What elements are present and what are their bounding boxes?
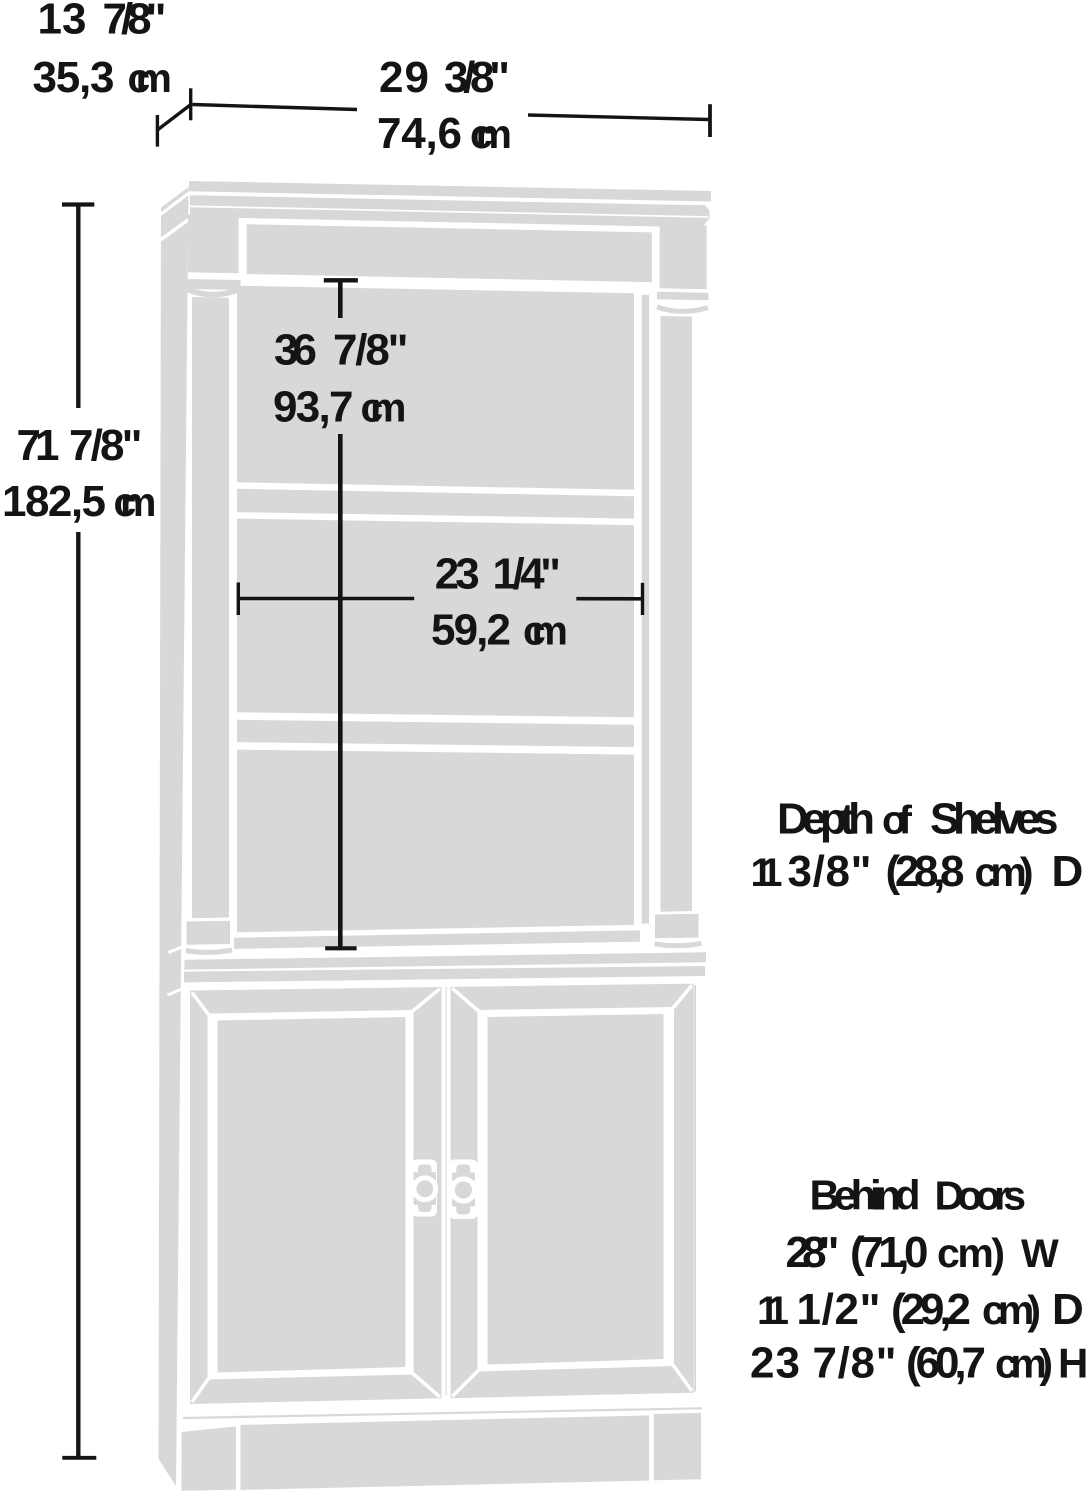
svg-text:cm: cm	[523, 608, 568, 654]
svg-text:(60,7: (60,7	[906, 1339, 986, 1388]
svg-text:of: of	[882, 799, 913, 843]
svg-text:D: D	[1052, 847, 1084, 896]
svg-text:35,3: 35,3	[33, 53, 115, 102]
svg-text:3/8": 3/8"	[788, 847, 872, 896]
svg-text:11: 11	[757, 1289, 789, 1333]
svg-text:1/2": 1/2"	[797, 1285, 881, 1334]
svg-text:71: 71	[17, 421, 60, 470]
svg-text:74,6: 74,6	[377, 109, 462, 158]
svg-text:cm): cm)	[982, 1287, 1041, 1333]
svg-text:7/8": 7/8"	[69, 421, 143, 470]
svg-text:7/8": 7/8"	[103, 0, 167, 44]
svg-text:182,5: 182,5	[2, 477, 106, 526]
svg-text:11: 11	[751, 851, 783, 895]
svg-text:cm: cm	[470, 111, 512, 157]
svg-text:23: 23	[750, 1339, 800, 1388]
svg-text:D: D	[1052, 1285, 1084, 1334]
svg-text:Depth: Depth	[777, 795, 875, 844]
svg-text:cm): cm)	[937, 1230, 1005, 1276]
svg-text:cm): cm)	[995, 1341, 1053, 1387]
svg-text:3/8": 3/8"	[444, 53, 510, 102]
svg-text:93,7: 93,7	[273, 383, 354, 432]
svg-text:Behind: Behind	[810, 1172, 921, 1219]
svg-text:13: 13	[38, 0, 87, 44]
svg-text:(29,2: (29,2	[891, 1285, 971, 1334]
svg-text:36: 36	[274, 326, 317, 375]
svg-text:7/8": 7/8"	[813, 1339, 897, 1388]
svg-text:(28,8: (28,8	[886, 847, 965, 896]
svg-text:cm: cm	[114, 479, 157, 525]
svg-text:7/8": 7/8"	[333, 326, 409, 375]
svg-text:(71,0: (71,0	[850, 1228, 929, 1277]
svg-text:29: 29	[379, 53, 429, 102]
svg-text:cm: cm	[128, 55, 173, 101]
svg-text:59,2: 59,2	[431, 606, 511, 655]
svg-text:Shelves: Shelves	[930, 795, 1059, 844]
svg-text:W: W	[1021, 1232, 1059, 1276]
svg-text:Doors: Doors	[935, 1173, 1027, 1219]
svg-text:1/4": 1/4"	[493, 550, 562, 599]
svg-text:cm): cm)	[975, 849, 1034, 895]
svg-text:cm: cm	[361, 385, 407, 431]
svg-text:H: H	[1058, 1340, 1088, 1387]
svg-text:23: 23	[435, 550, 480, 599]
svg-text:28": 28"	[786, 1228, 840, 1277]
